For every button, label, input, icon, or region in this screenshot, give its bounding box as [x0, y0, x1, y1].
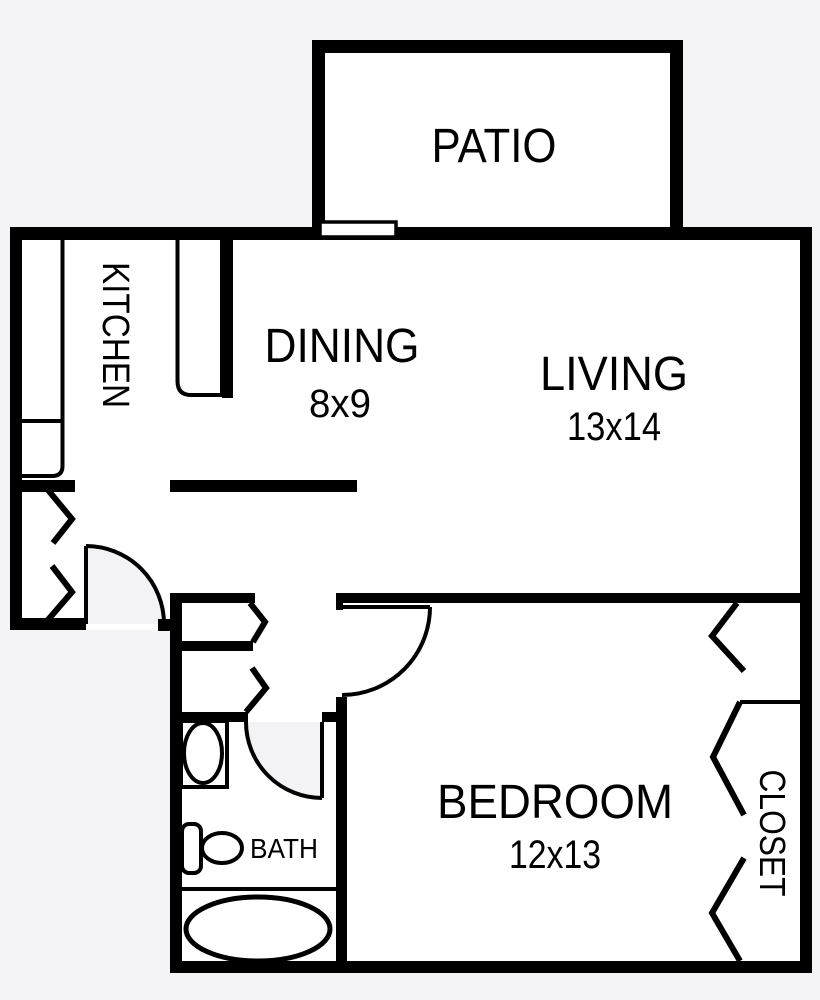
toilet-bowl: [184, 723, 222, 783]
bedroom-label: BEDROOM: [437, 776, 673, 829]
wall-living-bedroom-left: [172, 593, 255, 603]
kitchen-label: KITCHEN: [94, 262, 136, 408]
patio-label: PATIO: [432, 120, 557, 173]
sink-basin: [202, 833, 242, 863]
wall-patio-right: [670, 40, 683, 232]
sink-pedestal: [182, 824, 201, 873]
wall-bath-bedroom: [336, 697, 347, 973]
wall-main-left: [10, 227, 22, 630]
wall-main-right: [800, 227, 812, 973]
dining-dimensions: 8x9: [309, 382, 371, 426]
wall-patio-top: [312, 40, 683, 53]
floor-plan: PATIO KITCHEN DINING 8x9 LIVING 13x14 BE…: [0, 0, 820, 1000]
wall-main-top: [10, 227, 812, 240]
living-dimensions: 13x14: [567, 405, 661, 449]
wall-half-dining: [170, 480, 357, 492]
living-label: LIVING: [540, 348, 688, 401]
closet-label: CLOSET: [752, 770, 793, 897]
wall-entry-closet-top: [10, 480, 75, 492]
patio-sliding-door: [320, 222, 396, 237]
floor-plan-page: PATIO KITCHEN DINING 8x9 LIVING 13x14 BE…: [0, 0, 820, 1000]
dining-label: DINING: [265, 320, 420, 373]
bedroom-dimensions: 12x13: [509, 833, 601, 877]
bath-label: BATH: [250, 833, 318, 864]
wall-hall-closet-mid: [172, 641, 253, 651]
wall-living-bedroom-main: [336, 593, 800, 603]
wall-bedroom-door-stub: [336, 593, 343, 610]
wall-patio-left: [312, 40, 325, 232]
